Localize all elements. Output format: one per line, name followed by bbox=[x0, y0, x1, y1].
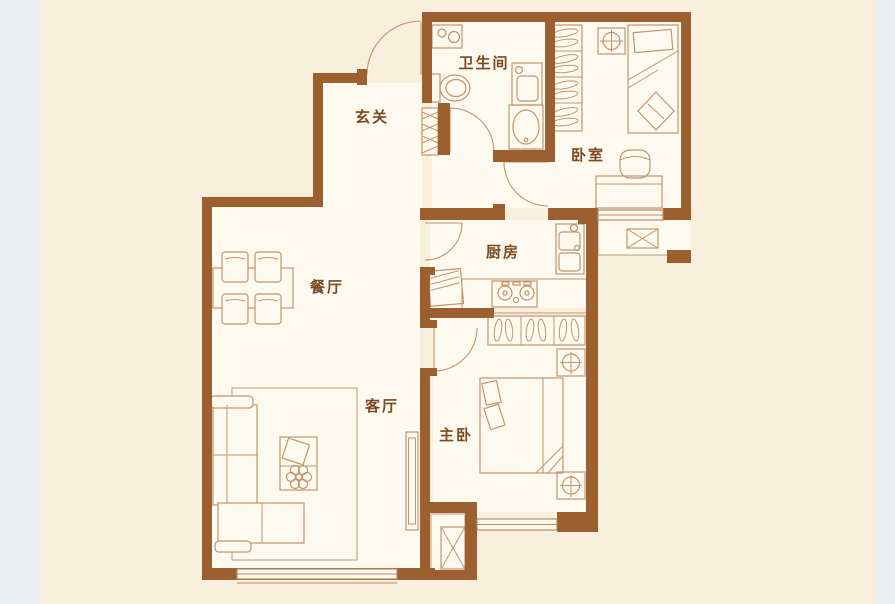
wall-segment bbox=[202, 197, 323, 207]
dining-chair-icon bbox=[222, 294, 248, 324]
room-label-dining: 餐厅 bbox=[310, 278, 344, 296]
wall-segment bbox=[663, 208, 691, 220]
room-label-living: 客厅 bbox=[364, 397, 399, 415]
wall-segment bbox=[423, 502, 477, 513]
dining-chair-icon bbox=[222, 252, 248, 282]
wall-segment bbox=[420, 368, 430, 580]
wall-segment bbox=[420, 320, 437, 328]
shoe-cabinet-icon bbox=[422, 108, 438, 155]
wall-segment bbox=[465, 513, 477, 580]
room-label-bathroom: 卫生间 bbox=[458, 54, 509, 72]
wall-segment bbox=[357, 69, 367, 85]
dining-chair-icon bbox=[255, 252, 281, 282]
wall-segment bbox=[420, 267, 430, 328]
floor-plan-page: 玄关 卫生间 卧室 厨房 餐厅 客厅 主卧 bbox=[0, 0, 895, 604]
wall-segment bbox=[545, 12, 555, 162]
room-label-kitchen: 厨房 bbox=[486, 243, 520, 261]
wall-segment bbox=[493, 204, 505, 220]
wall-segment bbox=[681, 12, 691, 220]
wall-segment bbox=[438, 103, 450, 155]
room-fill bbox=[432, 22, 681, 208]
wall-segment bbox=[422, 12, 432, 103]
window bbox=[477, 519, 557, 530]
room-fill bbox=[430, 513, 465, 572]
room-label-master: 主卧 bbox=[439, 426, 473, 444]
wall-segment bbox=[420, 267, 435, 275]
window bbox=[598, 210, 663, 220]
wall-segment bbox=[557, 512, 598, 532]
wall-segment bbox=[202, 197, 212, 580]
wall-segment bbox=[420, 308, 494, 318]
wall-segment bbox=[586, 208, 598, 248]
floor-plan-drawing: 玄关 卫生间 卧室 厨房 餐厅 客厅 主卧 bbox=[0, 0, 895, 604]
dining-chair-icon bbox=[255, 294, 281, 324]
wall-segment bbox=[586, 244, 598, 512]
wall-segment bbox=[420, 570, 477, 580]
room-fill bbox=[323, 83, 422, 208]
wall-segment bbox=[667, 250, 691, 263]
room-label-foyer: 玄关 bbox=[355, 108, 389, 126]
wall-segment bbox=[420, 208, 505, 220]
room-fill bbox=[430, 220, 586, 308]
room-label-bedroom: 卧室 bbox=[571, 146, 605, 164]
wall-segment bbox=[313, 73, 323, 202]
wall-segment bbox=[425, 12, 691, 22]
